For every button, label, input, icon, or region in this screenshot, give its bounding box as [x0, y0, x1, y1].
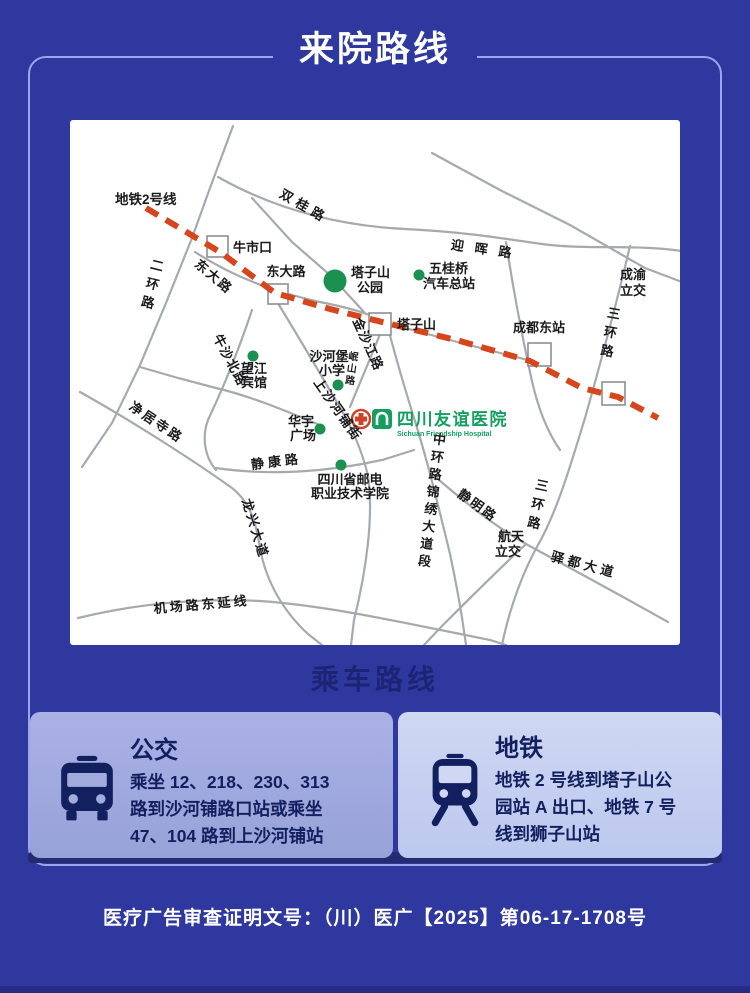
metro-card-line-3: 线到狮子山站: [495, 821, 722, 848]
poi-label-wugui-1: 五桂桥: [429, 261, 469, 276]
metro-train-icon: [424, 752, 486, 828]
metro-line2-label: 地铁2号线: [115, 191, 177, 207]
road-label-jichang: 机场路东延线: [153, 593, 250, 616]
poi-label-shahebao-1: 沙河堡: [309, 349, 348, 364]
metro-card-title: 地铁: [495, 728, 722, 763]
metro-card-line-1: 地铁 2 号线到塔子山公: [495, 767, 722, 794]
page-title: 来院路线: [273, 24, 477, 76]
license-text: 医疗广告审查证明文号：（川）医广【2025】第06-17-1708号: [0, 903, 750, 930]
bus-card-line-3: 47、104 路到上沙河铺站: [130, 823, 393, 850]
poi-label-youdian-2: 职业技术学院: [311, 486, 389, 501]
road-label-jingkang: 静康路: [250, 451, 302, 472]
metro-card-text: 地铁 2 号线到塔子山公 园站 A 出口、地铁 7 号 线到狮子山站: [495, 767, 722, 848]
road-jichang: [78, 600, 506, 645]
bus-card-title: 公交: [130, 730, 393, 765]
bus-card-text: 乘坐 12、218、230、313 路到沙河铺路口站或乘坐 47、104 路到上…: [130, 769, 393, 850]
metro-card-line-2: 园站 A 出口、地铁 7 号: [495, 794, 722, 821]
route-map: 四川友谊医院 Sichuan Friendship Hospital 地铁2号线…: [70, 120, 680, 645]
road-label-jingjusi: 净居寺路: [127, 399, 187, 446]
poi-label-wangjiang-2: 宾馆: [241, 375, 267, 390]
page: 来院路线: [0, 0, 750, 993]
road-label-sanhuan-lower: 三环路: [526, 477, 551, 532]
map-labels: 地铁2号线 双桂路 迎晖路 二环路 东大路 东大路 牛市口 塔子山 成都东站 成…: [115, 186, 647, 616]
road-label-chengyu-2: 立交: [620, 283, 646, 298]
map-panel: 四川友谊医院 Sichuan Friendship Hospital 地铁2号线…: [70, 120, 680, 645]
poi-label-wangjiang-1: 望江: [241, 361, 267, 376]
bus-card: 公交 乘坐 12、218、230、313 路到沙河铺路口站或乘坐 47、104 …: [30, 712, 393, 858]
park-circle: [324, 270, 347, 293]
hospital-name-cn: 四川友谊医院: [397, 409, 508, 429]
hospital-logo: 四川友谊医院 Sichuan Friendship Hospital: [352, 409, 508, 438]
section-title: 乘车路线: [0, 658, 750, 698]
youdian-dot: [336, 460, 347, 471]
station-label-tazishan: 塔子山: [397, 317, 436, 332]
hospital-cross-h: [355, 417, 367, 422]
wangjiang-dot: [248, 351, 259, 362]
huayu-dot: [315, 424, 326, 435]
bottom-edge: [0, 986, 750, 993]
station-label-chengdudong: 成都东站: [513, 320, 565, 335]
poi-label-park-2: 公园: [357, 280, 383, 295]
metro-card: 地铁 地铁 2 号线到塔子山公 园站 A 出口、地铁 7 号 线到狮子山站: [398, 712, 722, 858]
poi-label-park-1: 塔子山: [351, 265, 390, 280]
station-label-dongda: 东大路: [266, 264, 306, 279]
bus-icon: [56, 754, 118, 830]
bus-card-line-1: 乘坐 12、218、230、313: [130, 769, 393, 796]
road-zhonghuan: [386, 320, 466, 645]
road-label-yinghui: 迎晖路: [450, 237, 523, 262]
road-label-jingming: 静明路: [455, 486, 500, 525]
road-chengyu: [432, 153, 680, 282]
poi-label-wugui-2: 汽车总站: [423, 276, 475, 291]
poi-label-huayu-1: 华宇: [288, 414, 314, 429]
road-label-longxing: 龙兴大道: [239, 497, 271, 561]
poi-label-youdian-1: 四川省邮电: [317, 472, 382, 487]
road-label-erhuan: 二环路: [140, 257, 166, 312]
shahebao-dot: [333, 380, 344, 391]
bus-card-line-2: 路到沙河铺路口站或乘坐: [130, 796, 393, 823]
road-label-sanhuan-upper: 三环路: [599, 305, 622, 360]
station-label-niushikou: 牛市口: [233, 240, 272, 255]
poi-label-huayu-2: 广场: [290, 428, 316, 443]
road-niushabei: [205, 310, 252, 470]
road-hangtian-branch: [424, 544, 526, 645]
road-label-hangtian-1: 航天: [498, 529, 525, 544]
road-jingkang: [216, 450, 414, 472]
road-label-hangtian-2: 立交: [495, 544, 521, 559]
road-label-chengyu-1: 成渝: [620, 267, 647, 282]
road-label-zhonghuan: 中环路锦绣大道段: [417, 431, 448, 569]
